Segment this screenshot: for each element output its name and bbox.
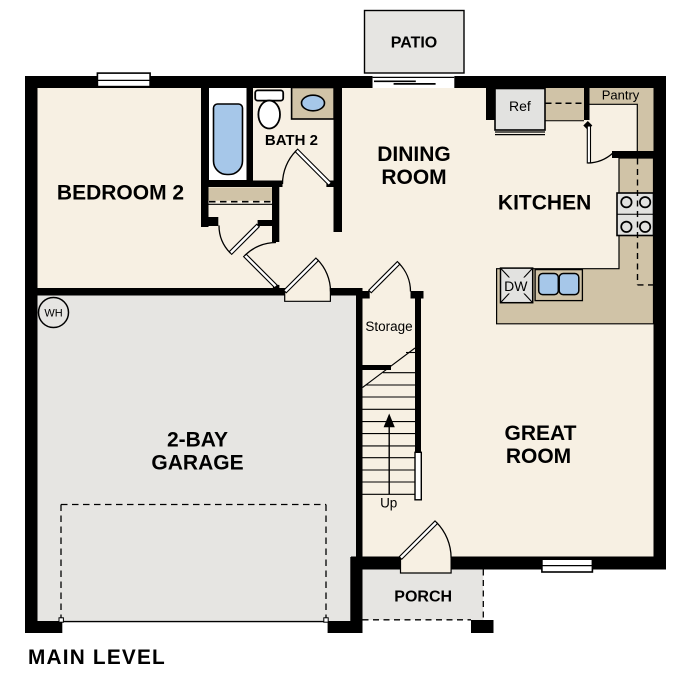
svg-text:Pantry: Pantry bbox=[602, 88, 640, 103]
svg-text:DW: DW bbox=[504, 278, 528, 294]
svg-text:PATIO: PATIO bbox=[391, 35, 438, 52]
svg-text:GARAGE: GARAGE bbox=[151, 452, 243, 475]
svg-text:2-BAY: 2-BAY bbox=[167, 429, 228, 452]
svg-text:ROOM: ROOM bbox=[381, 166, 446, 189]
svg-text:KITCHEN: KITCHEN bbox=[498, 192, 591, 215]
svg-text:GREAT: GREAT bbox=[505, 422, 577, 445]
svg-text:Up: Up bbox=[380, 495, 397, 510]
svg-text:BEDROOM 2: BEDROOM 2 bbox=[57, 181, 184, 204]
svg-text:WH: WH bbox=[44, 308, 62, 320]
svg-text:ROOM: ROOM bbox=[506, 445, 571, 468]
svg-text:PORCH: PORCH bbox=[394, 589, 452, 606]
svg-text:MAIN LEVEL: MAIN LEVEL bbox=[28, 646, 166, 669]
svg-text:DINING: DINING bbox=[377, 143, 451, 166]
svg-text:Storage: Storage bbox=[365, 319, 412, 334]
svg-text:Ref: Ref bbox=[509, 98, 531, 114]
svg-text:BATH 2: BATH 2 bbox=[265, 132, 318, 149]
